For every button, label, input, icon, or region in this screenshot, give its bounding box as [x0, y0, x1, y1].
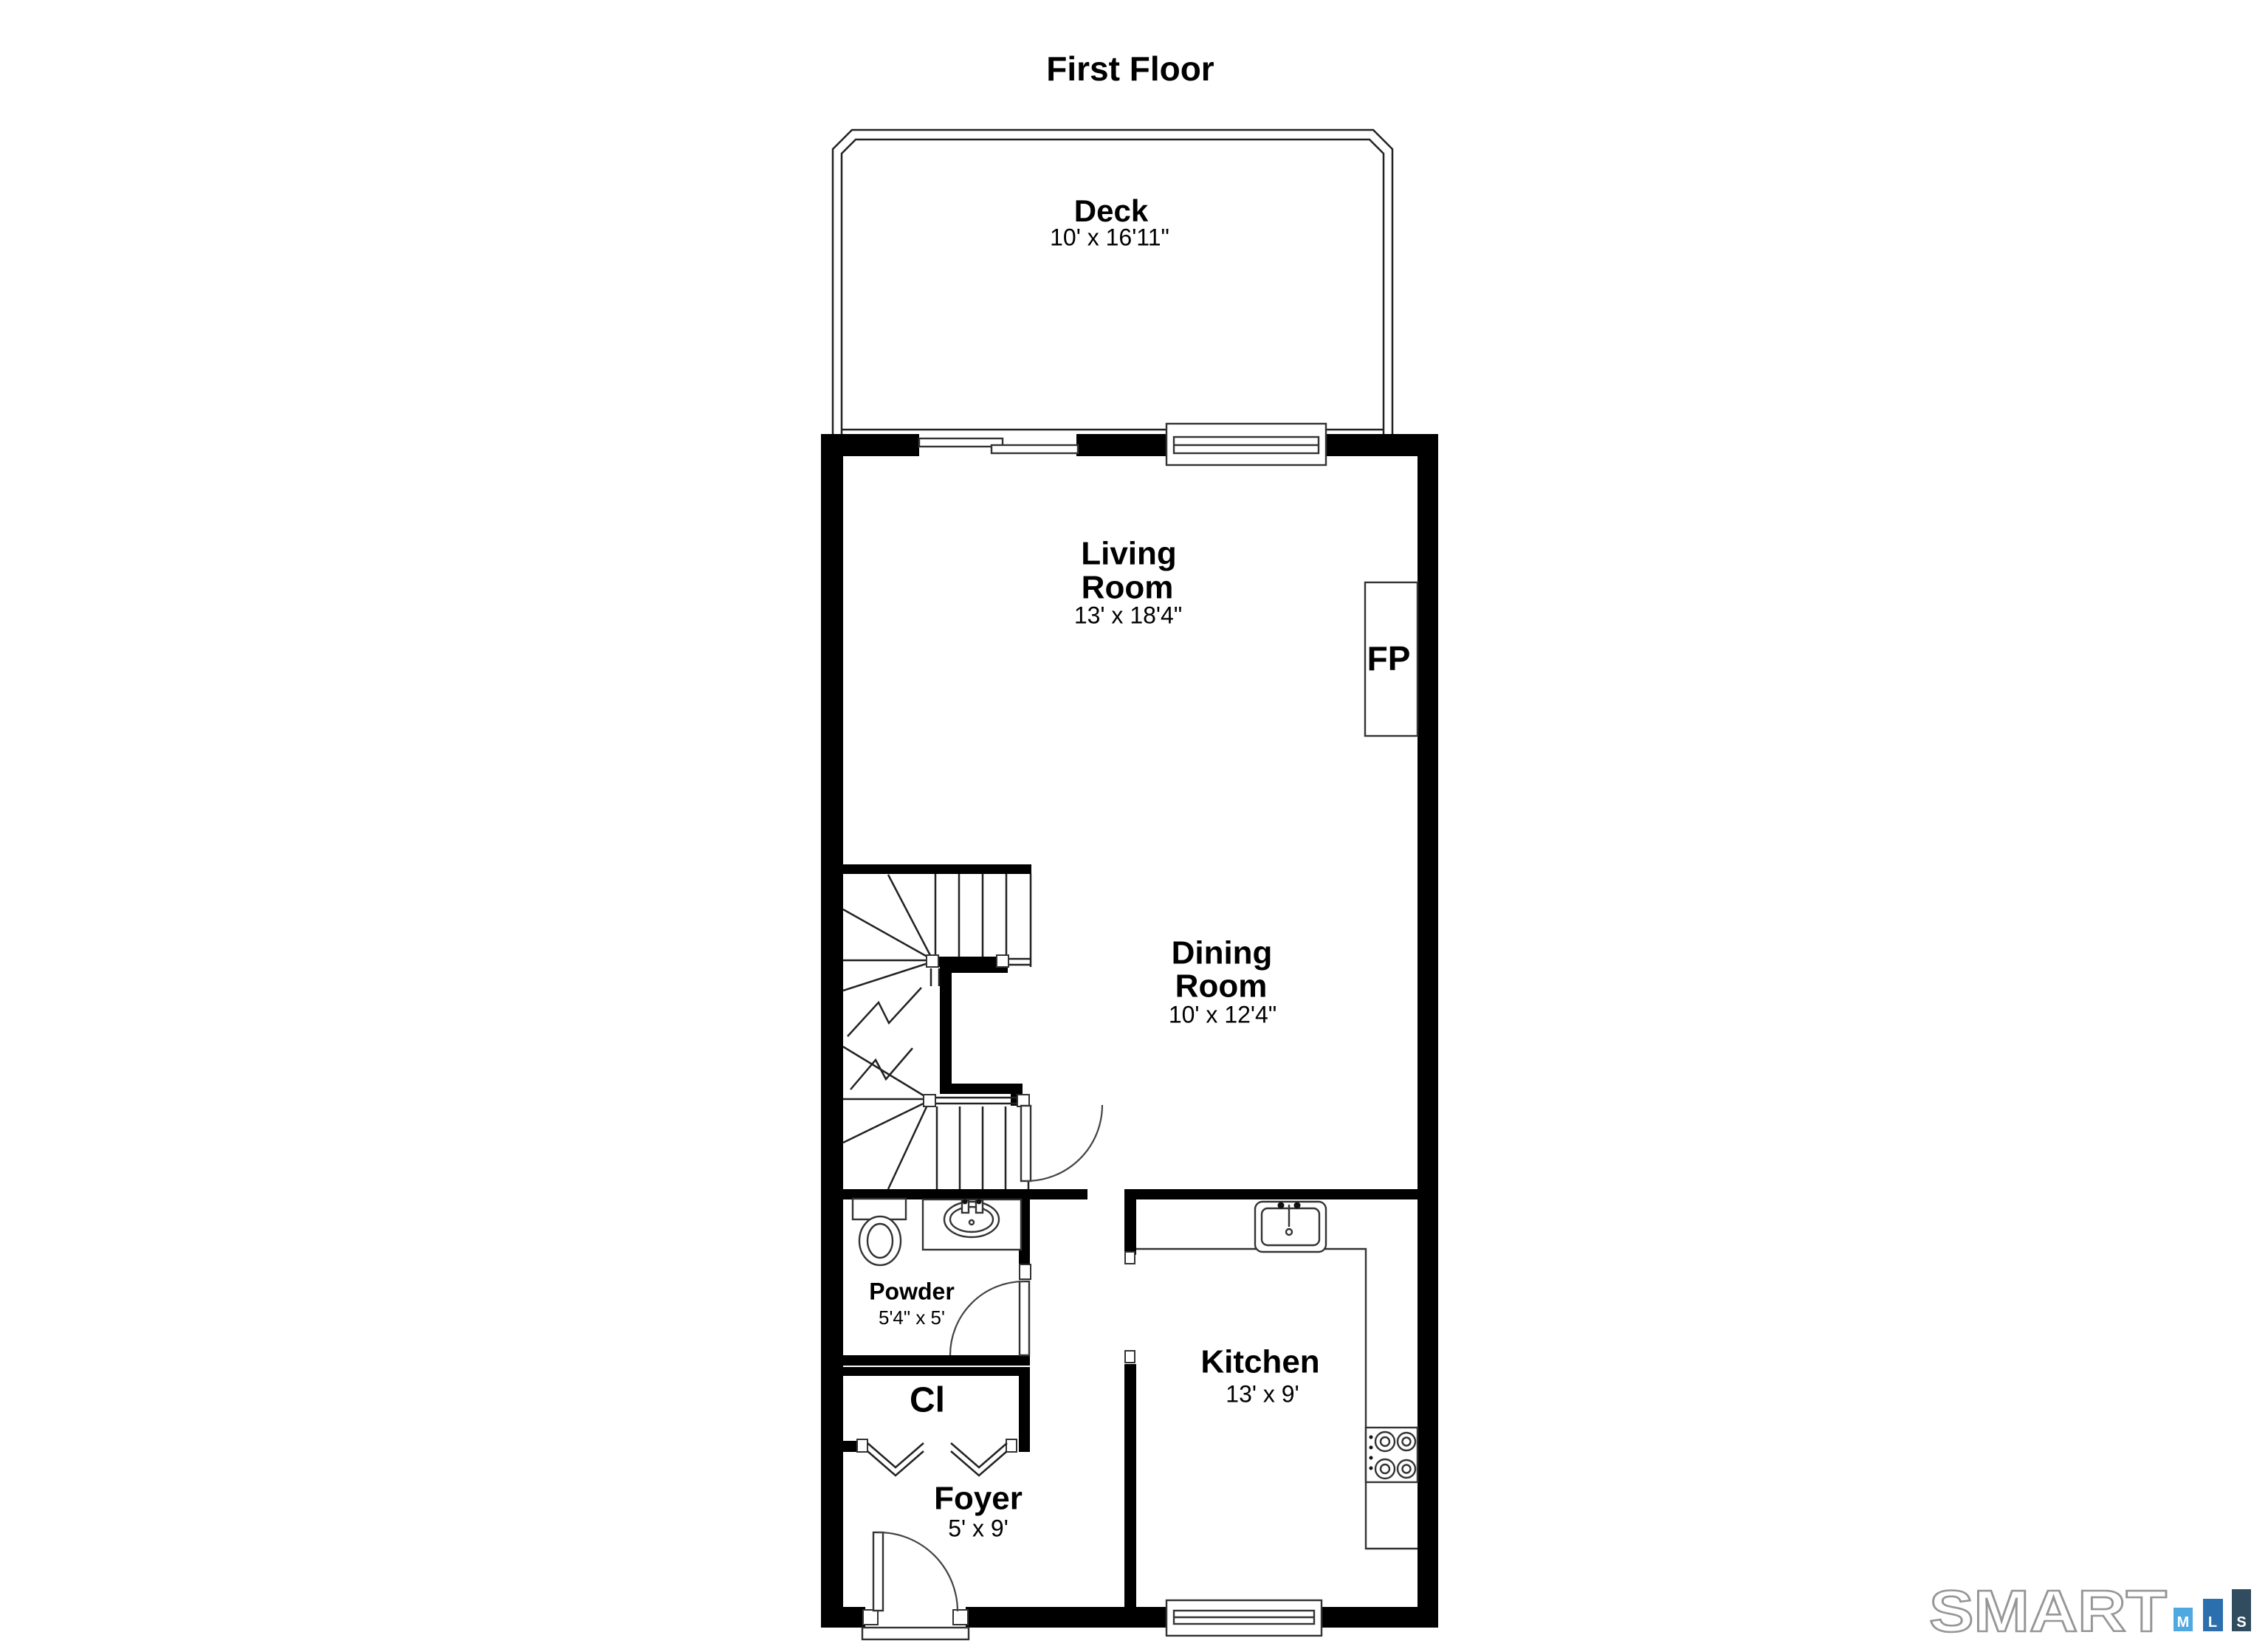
stair-upper-treads — [935, 874, 1006, 957]
kitchen-sink-inner — [1262, 1208, 1319, 1245]
wall-right — [1417, 434, 1438, 1628]
wall-kitchen-left-upper — [1124, 1189, 1136, 1255]
wall-powder-bottom — [821, 1355, 1030, 1366]
vanity-faucet-dot-left — [963, 1199, 968, 1205]
stove-knob-1 — [1370, 1436, 1373, 1439]
bifold-door-right-inner — [951, 1451, 1007, 1476]
stair-break-mark-upper — [848, 988, 921, 1036]
deck-outline — [833, 130, 1392, 434]
sliding-door-panel-right — [992, 445, 1078, 453]
stair-door-swing-arc — [1026, 1105, 1102, 1181]
fireplace-label: FP — [1367, 639, 1411, 678]
wall-bottom-segment-1 — [821, 1607, 865, 1628]
smartmls-logo: SMART M L S — [1929, 1578, 2251, 1644]
kitchen-door-frame-bottom — [1125, 1351, 1135, 1363]
wall-kitchen-top — [1124, 1189, 1417, 1199]
deck-outer-border — [833, 130, 1392, 434]
powder-door-frame — [1020, 1264, 1031, 1279]
fireplace: FP — [1365, 582, 1417, 736]
stair-post-upper-left — [927, 955, 938, 967]
entry-threshold — [862, 1628, 969, 1639]
wall-closet-left-stub — [843, 1441, 857, 1452]
deck-label: Deck — [1074, 193, 1149, 228]
dining-room-dims: 10' x 12'4" — [1169, 1001, 1276, 1027]
wall-stairwell-bottom-arm — [940, 1084, 1023, 1094]
powder-room-label: Powder — [869, 1278, 955, 1304]
powder-door-swing-arc — [950, 1281, 1024, 1355]
wall-stair-top — [843, 864, 1031, 874]
sink-faucet-dot-right — [1294, 1202, 1301, 1209]
stair-lower-rail — [935, 1098, 1017, 1104]
bifold-door-left-outer — [867, 1443, 924, 1467]
sink-faucet-dot-left — [1278, 1202, 1285, 1209]
stair-post-lower-right — [1017, 1095, 1029, 1106]
stair-upper-winders — [843, 875, 932, 991]
floorplan-drawing: FP First Floor Deck 10' x 16'11" Living … — [0, 0, 2268, 1649]
logo-bar-l-letter: L — [2208, 1614, 2217, 1631]
foyer-label: Foyer — [934, 1481, 1023, 1517]
stove-knob-4 — [1370, 1467, 1373, 1470]
closet-frame-right — [1006, 1439, 1017, 1452]
wall-closet-right — [1019, 1376, 1030, 1452]
wall-bottom-segment-3 — [1322, 1607, 1417, 1628]
entry-frame-right — [953, 1610, 968, 1625]
closet-label: Cl — [910, 1381, 945, 1420]
floorplan-page: FP First Floor Deck 10' x 16'11" Living … — [0, 0, 2268, 1649]
stair-rail-channel — [931, 968, 939, 986]
wall-closet-top — [843, 1367, 1030, 1376]
vanity-faucet-dot-right — [977, 1199, 982, 1205]
toilet-bowl-inner — [867, 1224, 893, 1258]
wall-top-segment-3 — [1326, 434, 1417, 456]
logo-bar-s-letter: S — [2236, 1614, 2246, 1631]
sliding-door-panel-left — [919, 438, 1003, 447]
bifold-door-left-inner — [867, 1451, 924, 1476]
dining-room-label-line2: Room — [1175, 968, 1268, 1005]
deck-dims: 10' x 16'11" — [1050, 224, 1169, 250]
dining-room-label-line1: Dining — [1172, 935, 1273, 971]
living-room-dims: 13' x 18'4" — [1074, 602, 1182, 628]
stair-post-upper-right — [997, 955, 1008, 967]
kitchen-door-frame-top — [1125, 1252, 1135, 1264]
kitchen-label: Kitchen — [1200, 1344, 1319, 1380]
living-room-label-line1: Living — [1081, 536, 1177, 572]
stairs — [843, 874, 1102, 1189]
stair-post-lower-left — [924, 1095, 935, 1106]
wall-left — [821, 434, 843, 1628]
stair-lower-treads — [937, 1106, 1028, 1189]
page-title: First Floor — [1046, 49, 1214, 88]
powder-room — [853, 1199, 1031, 1355]
interior-walls — [821, 864, 1417, 1607]
wall-top-segment-1 — [821, 434, 919, 456]
closet-frame-left — [857, 1439, 867, 1452]
powder-door-leaf — [1020, 1281, 1029, 1355]
powder-room-dims: 5'4" x 5' — [879, 1307, 945, 1329]
kitchen-dims: 13' x 9' — [1226, 1380, 1299, 1407]
wall-top-segment-2 — [1076, 434, 1166, 456]
smartmls-wordmark: SMART — [1929, 1578, 2167, 1644]
labels: First Floor Deck 10' x 16'11" Living Roo… — [869, 49, 1319, 1541]
wall-bottom-segment-2 — [966, 1607, 1166, 1628]
stair-upper-rail-right — [1008, 959, 1031, 965]
logo-bar-m-letter: M — [2177, 1614, 2190, 1631]
entry-frame-left — [863, 1610, 878, 1625]
stair-door-leaf — [1021, 1106, 1031, 1181]
foyer-dims: 5' x 9' — [948, 1515, 1008, 1541]
closet — [857, 1439, 1017, 1476]
stove-knob-2 — [1370, 1446, 1373, 1450]
entry-door-swing-arc — [879, 1532, 958, 1611]
living-room-label-line2: Room — [1082, 570, 1174, 606]
entry-door-leaf — [873, 1532, 883, 1611]
wall-stair-rail-bar — [938, 957, 1001, 967]
stove-knob-3 — [1370, 1456, 1373, 1460]
wall-stairwell-left-arm — [940, 963, 952, 1094]
bifold-door-right-outer — [951, 1443, 1007, 1467]
deck-inner-border — [842, 140, 1384, 434]
wall-kitchen-left-lower — [1124, 1364, 1136, 1607]
stair-lower-winders — [843, 1047, 929, 1189]
